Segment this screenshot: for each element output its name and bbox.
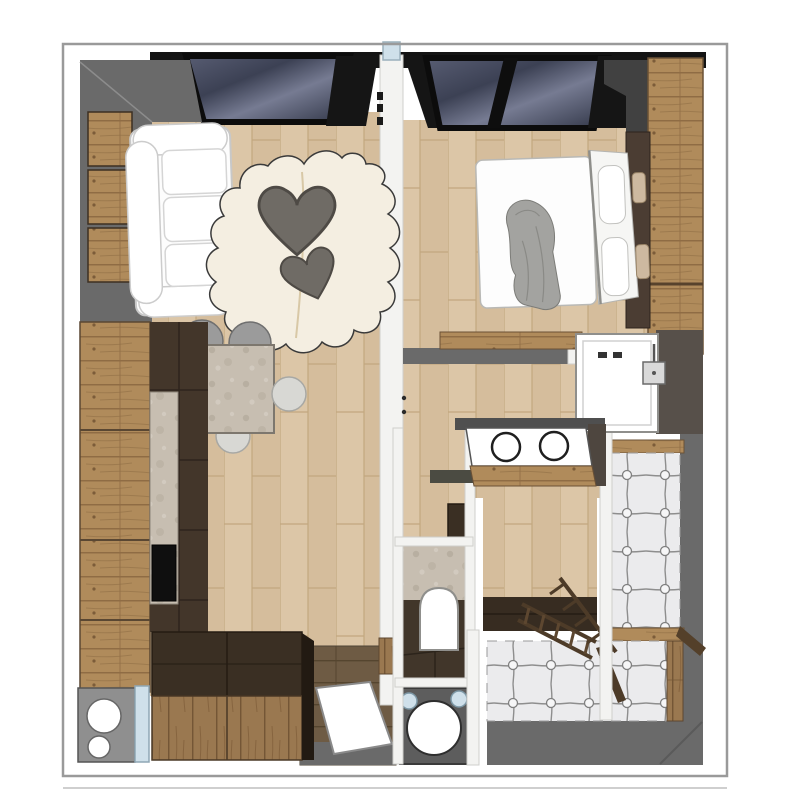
wood-wardrobe-wall <box>648 58 703 354</box>
cushion-bottom <box>636 244 650 278</box>
platform-floor <box>483 496 597 598</box>
sink-basin-small <box>88 736 110 758</box>
sink-basin-large <box>87 699 121 733</box>
pit-trim-side <box>667 641 683 721</box>
washing-machine-door <box>407 701 461 755</box>
wall-switch-1 <box>377 92 383 100</box>
sofa-backrest <box>125 141 163 304</box>
living-room-window <box>186 56 350 122</box>
chest-shadow <box>302 633 314 760</box>
wc-room <box>403 545 467 682</box>
wall-switch-2 <box>377 104 383 112</box>
pit-trim-mid <box>600 628 684 641</box>
wall-shelves <box>88 112 132 282</box>
double-bed <box>475 148 650 311</box>
sink-unit <box>78 686 149 762</box>
toilet <box>420 588 458 650</box>
wall-switch-3 <box>377 117 383 125</box>
vanity-front <box>470 466 596 486</box>
bed-foot-bench <box>440 332 582 349</box>
floor-plan-render <box>0 0 800 798</box>
cushion-top <box>632 172 646 202</box>
cooktop <box>152 545 176 601</box>
pillow-bottom <box>601 237 629 296</box>
pillow-top <box>598 165 626 224</box>
pit-walkway <box>487 718 703 765</box>
shower-valve-2 <box>613 352 622 358</box>
kitchen-wall-cabinets <box>80 322 150 692</box>
dining-chair-right <box>272 377 306 411</box>
sink-left <box>492 433 520 461</box>
sofa-cushion-1 <box>162 149 227 195</box>
laundry-closet <box>400 688 468 764</box>
shower-valve-1 <box>598 352 607 358</box>
door-hook-1 <box>402 396 406 400</box>
floor-plan-page <box>0 0 800 798</box>
vanity-counter <box>466 428 592 466</box>
tufted-bench-right <box>610 453 680 630</box>
glass-panel <box>135 686 149 762</box>
washer-knob-right <box>451 691 467 707</box>
sink-right <box>540 432 568 460</box>
pit-trim-top <box>610 440 684 453</box>
tufted-bench-bottom <box>487 641 667 721</box>
door-hook-2 <box>402 410 406 414</box>
bedroom-window <box>426 58 608 128</box>
